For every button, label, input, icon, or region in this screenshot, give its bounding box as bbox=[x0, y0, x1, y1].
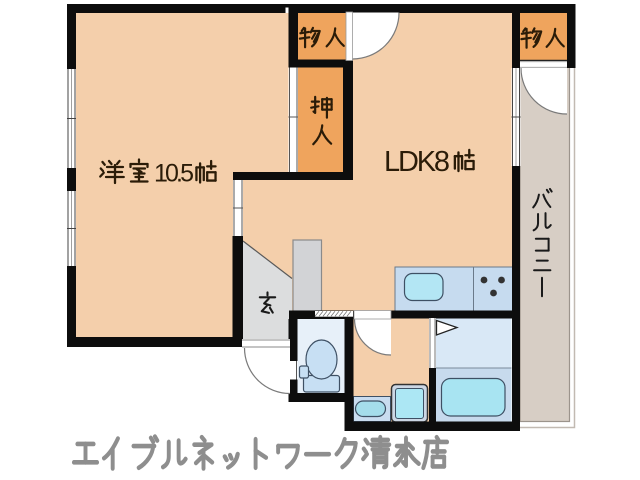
svg-text:LDK8: LDK8 bbox=[384, 146, 450, 178]
svg-text:10.5: 10.5 bbox=[154, 160, 194, 188]
